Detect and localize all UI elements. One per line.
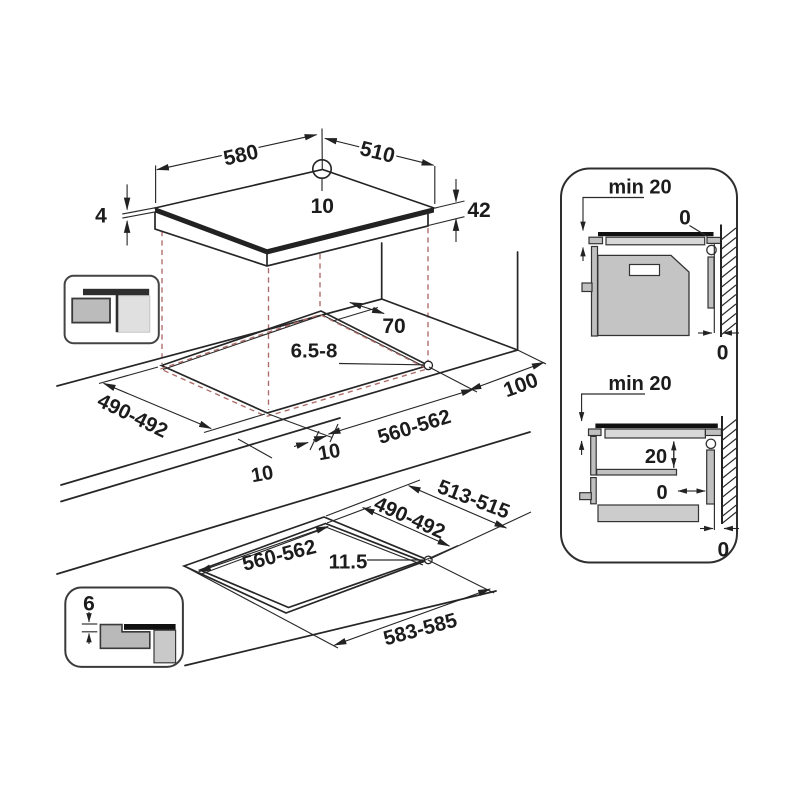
svg-text:0: 0 — [717, 342, 729, 365]
svg-text:42: 42 — [467, 199, 490, 222]
svg-text:10: 10 — [249, 462, 275, 488]
svg-text:20: 20 — [645, 446, 667, 468]
svg-text:min 20: min 20 — [608, 373, 671, 395]
svg-text:70: 70 — [382, 315, 405, 338]
svg-text:10: 10 — [311, 195, 334, 218]
svg-text:min 20: min 20 — [608, 177, 671, 199]
svg-text:0: 0 — [679, 207, 691, 230]
svg-text:0: 0 — [717, 539, 729, 562]
svg-text:6.5-8: 6.5-8 — [291, 340, 338, 363]
svg-text:11.5: 11.5 — [329, 551, 368, 574]
svg-text:0: 0 — [656, 482, 667, 504]
svg-text:4: 4 — [95, 205, 107, 228]
svg-text:10: 10 — [316, 440, 342, 466]
